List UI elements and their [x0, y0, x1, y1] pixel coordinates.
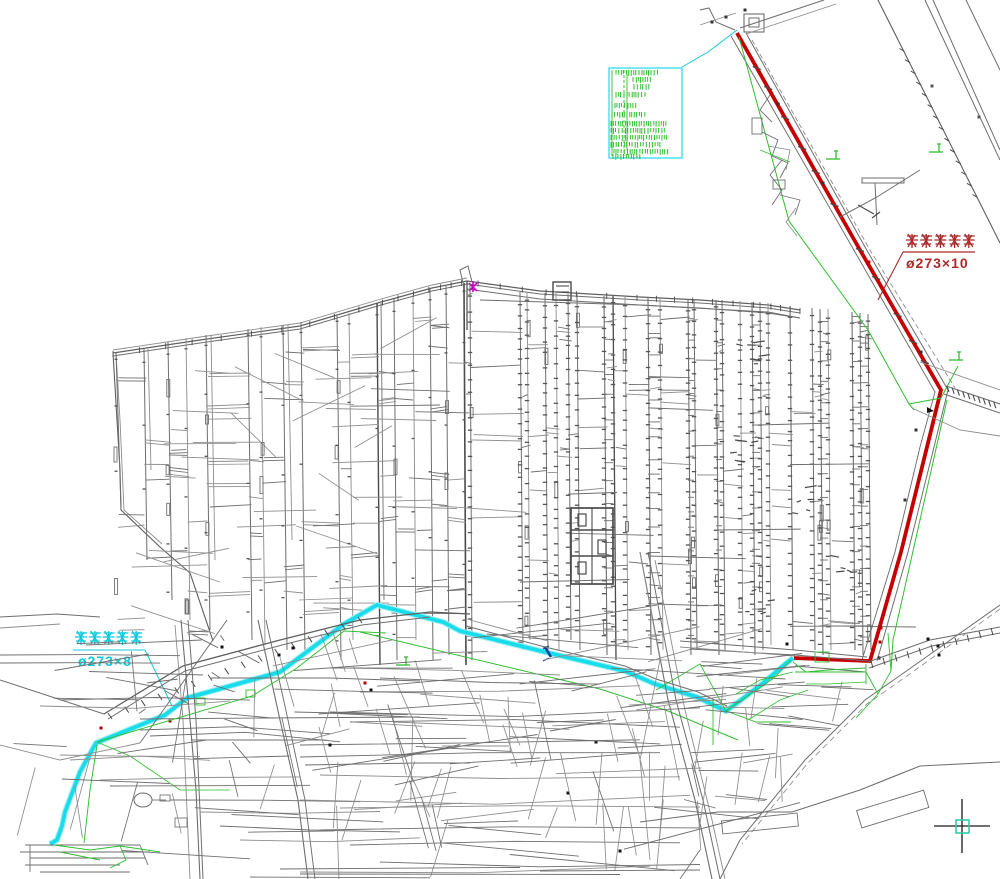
- svg-text:ø273×10: ø273×10: [906, 255, 969, 271]
